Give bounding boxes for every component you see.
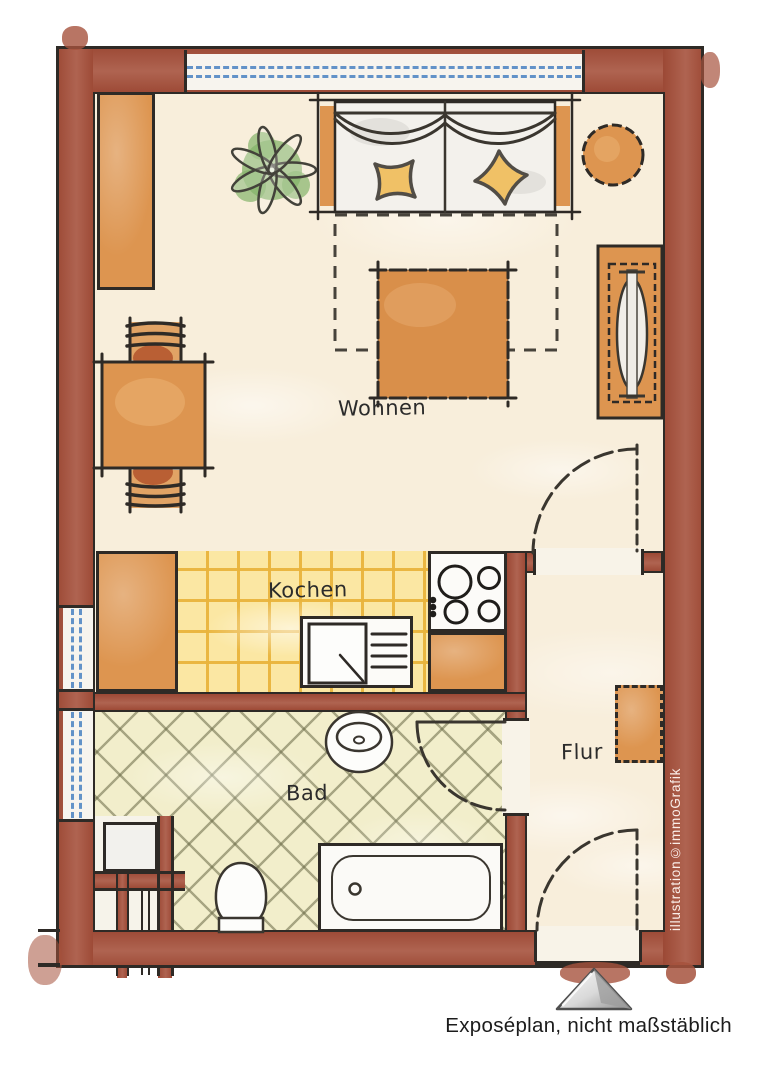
bathtub-drain bbox=[350, 884, 361, 895]
sofa-armrest-right bbox=[555, 106, 570, 206]
bathroom-sink bbox=[326, 712, 392, 772]
coffee-table bbox=[370, 262, 516, 406]
door-wohnen bbox=[533, 445, 637, 553]
watermark: illustration©immoGrafik bbox=[668, 758, 696, 940]
label-kochen: Kochen bbox=[268, 577, 348, 602]
label-bad: Bad bbox=[286, 781, 329, 806]
label-wohnen: Wohnen bbox=[338, 395, 427, 421]
tall-cabinet bbox=[598, 246, 662, 418]
sofa-cushion bbox=[375, 161, 415, 199]
plan-overlay bbox=[0, 0, 766, 1080]
toilet bbox=[216, 863, 266, 932]
stove-burners bbox=[431, 566, 499, 623]
metallic-triangle-logo-icon bbox=[557, 969, 631, 1009]
dining-table bbox=[94, 354, 213, 476]
sofa bbox=[310, 93, 580, 219]
door-entrance bbox=[537, 830, 637, 930]
door-bad bbox=[417, 722, 505, 810]
kitchen-sink-details bbox=[309, 624, 406, 683]
floor-plan-canvas: Wohnen Kochen Bad Flur illustration©immo… bbox=[0, 0, 766, 1080]
round-side-table bbox=[583, 125, 643, 185]
label-flur: Flur bbox=[561, 740, 603, 765]
caption: Exposéplan, nicht maßstäblich bbox=[390, 1014, 732, 1038]
sofa-armrest-left bbox=[320, 106, 335, 206]
plant bbox=[229, 125, 316, 214]
